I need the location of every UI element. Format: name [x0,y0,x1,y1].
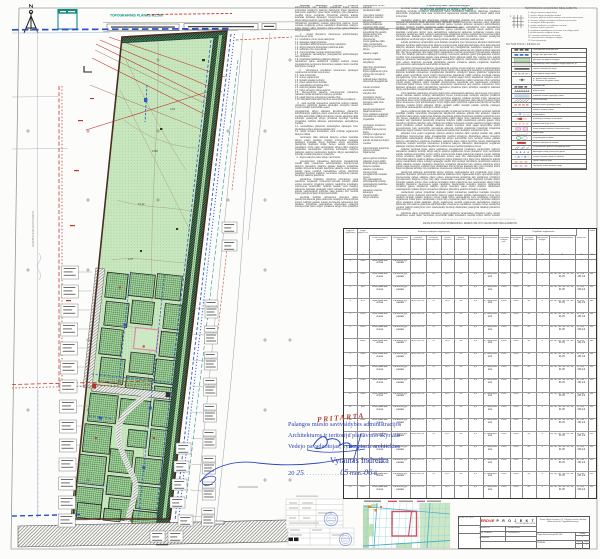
svg-text:2,07: 2,07 [128,257,134,261]
svg-text:1: 1 [510,15,512,18]
svg-text:suprojektuota pagal geodezini: suprojektuota pagal geodezini pagrinda [32,210,35,247]
svg-text:TOPOGRAFINIS PLANAS M1:500: TOPOGRAFINIS PLANAS M1:500 [110,14,163,18]
svg-text:4,92: 4,92 [170,107,176,111]
svg-text:1568: 1568 [152,149,158,153]
svg-text:0B: 0B [518,113,521,115]
svg-text:15,32: 15,32 [138,202,145,206]
